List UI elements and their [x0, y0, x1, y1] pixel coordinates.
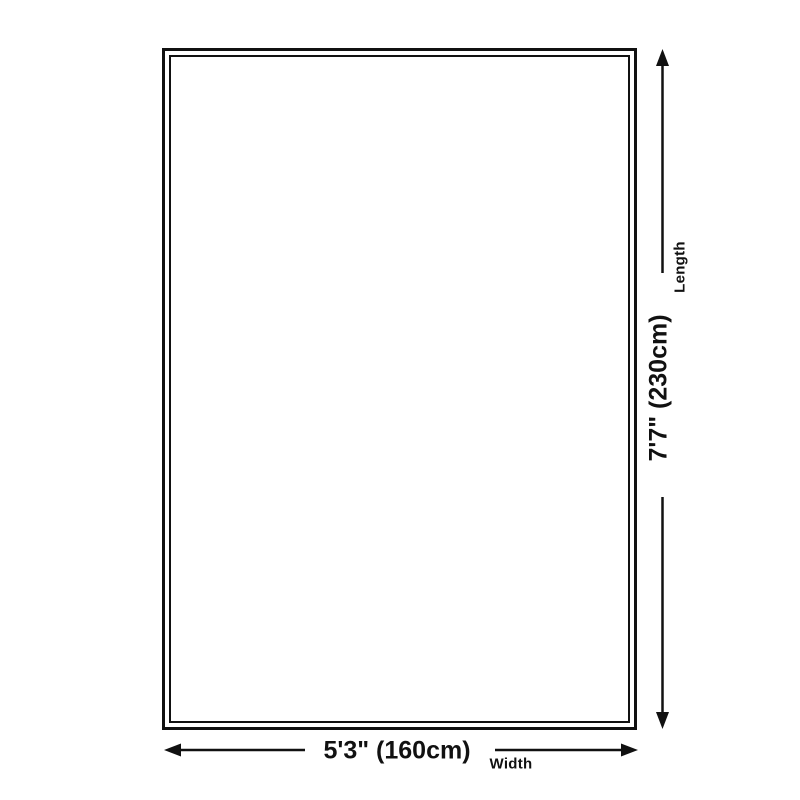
rug-outline-inner-border — [169, 55, 630, 723]
rug-dimension-diagram: 7'7" (230cm) Length 5'3" (160cm) Width — [0, 0, 800, 800]
rug-outline — [162, 48, 637, 730]
arrowhead-up-icon — [656, 49, 669, 66]
width-label: Width — [489, 757, 532, 772]
arrowhead-right-icon — [621, 744, 638, 757]
length-label: Length — [673, 241, 688, 293]
arrowhead-left-icon — [164, 744, 181, 757]
length-value: 7'7" (230cm) — [647, 314, 672, 461]
width-value: 5'3" (160cm) — [323, 739, 470, 764]
arrowhead-down-icon — [656, 712, 669, 729]
